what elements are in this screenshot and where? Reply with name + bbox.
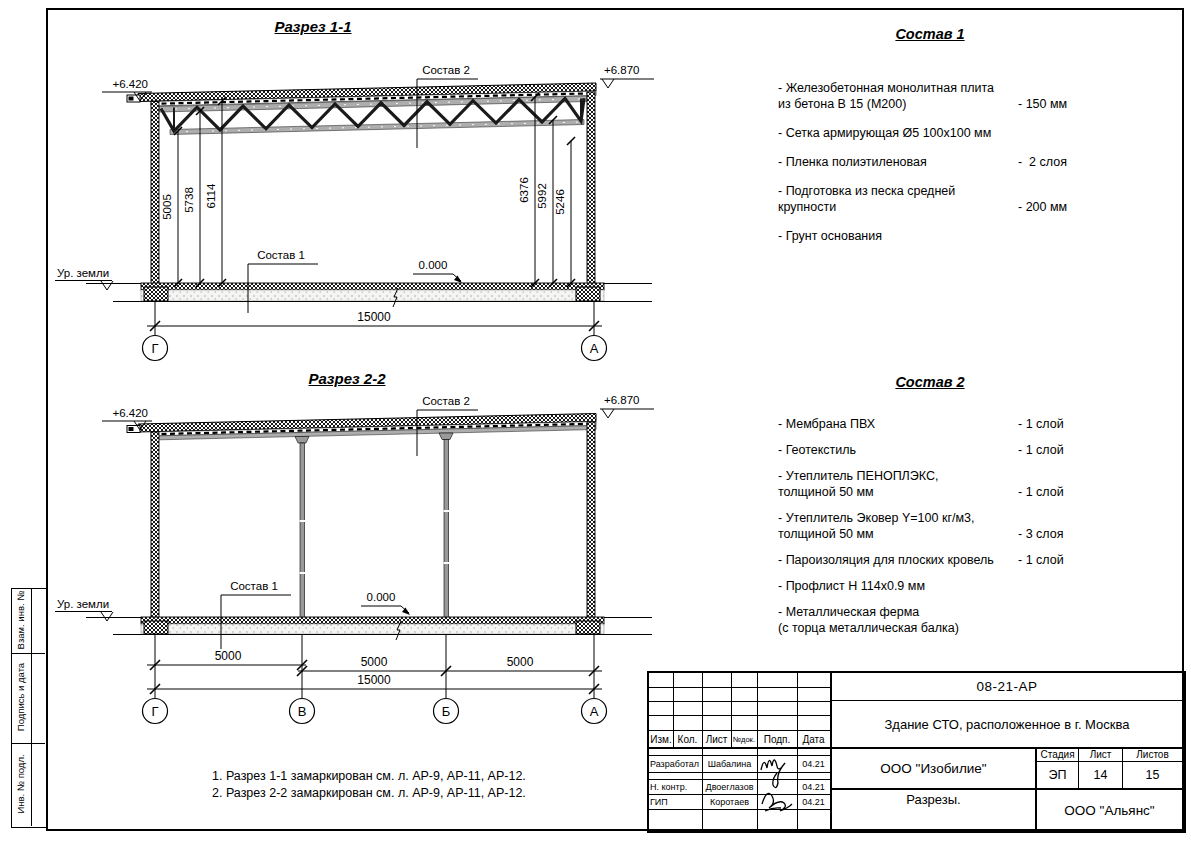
row-role: Н. контр. [650, 779, 702, 794]
project-title: Здание СТО, расположенное в г. Москва [832, 702, 1182, 746]
axis-a: А [590, 341, 599, 356]
strip-label-inv: Инв. № подл. [13, 739, 27, 829]
stage-value: ЭП [1037, 762, 1078, 787]
axis-v: В [298, 704, 307, 719]
foundation-right [576, 287, 600, 301]
column-right [587, 92, 595, 287]
drawing-sheet: Взам. инв. № Подпись и дата Инв. № подл.… [0, 0, 1191, 842]
row-role: ГИП [650, 794, 702, 809]
notes: 1. Разрез 1-1 замаркирован см. л. АР-9, … [212, 768, 526, 801]
row-name: Двоеглазов [702, 779, 757, 794]
col-izm: Изм. [649, 731, 673, 747]
col-podp: Подп. [757, 731, 797, 747]
sostav2-callout: Состав 2 [422, 64, 470, 76]
elevation-6870: +6.870 [604, 64, 640, 76]
floor-slab [86, 617, 652, 640]
axis-markers [143, 336, 607, 361]
column-left [151, 102, 159, 288]
col-ndok: №док. [731, 731, 757, 747]
list-item: - Мембрана ПВХ - 1 слой [778, 416, 1178, 432]
zero-arrowhead [454, 276, 462, 284]
list-item: - Сетка армирующая Ø5 100х100 мм [778, 125, 1178, 141]
elevation-marks [55, 79, 654, 290]
dim-5738: 5738 [183, 187, 195, 213]
list-item: - Грунт основания [778, 228, 1178, 244]
leader-lines [248, 79, 478, 313]
leader-lines [221, 410, 478, 649]
note-line: 1. Разрез 1-1 замаркирован см. л. АР-9, … [212, 768, 526, 785]
row-date: 04.21 [797, 779, 830, 794]
sostav1-heading: Состав 1 [865, 26, 995, 42]
axis-g: Г [151, 704, 158, 719]
column-axis-b [439, 433, 453, 618]
list-item: - Металлическая ферма (с торца металличе… [778, 604, 1178, 636]
sheet-name: Разрезы. [833, 791, 1034, 807]
list-item: - Утеплитель Эковер Y=100 кг/м3, толщино… [778, 510, 1178, 542]
dim-6376: 6376 [518, 177, 530, 203]
list-item: - Пароизоляция для плоских кровель - 1 с… [778, 552, 1178, 568]
list-item: - Утеплитель ПЕНОПЛЭКС, толщиной 50 мм -… [778, 468, 1178, 500]
doc-number: 08-21-АР [832, 674, 1182, 699]
dim-bay1: 5000 [215, 649, 242, 663]
note-line: 2. Разрез 2-2 замаркирован см. л. АР-9, … [212, 785, 526, 802]
row-role: Разработал [650, 755, 702, 772]
sheets-value: 15 [1123, 762, 1182, 787]
list-item: - Геотекстиль - 1 слой [778, 442, 1178, 458]
axis-g: Г [151, 341, 158, 356]
col-data: Дата [797, 731, 830, 747]
dim-5246: 5246 [554, 189, 566, 215]
elevation-marks [55, 409, 654, 621]
foundation-left [144, 621, 168, 634]
stage-label: Стадия [1037, 748, 1078, 761]
signature-strokes [757, 748, 797, 814]
zero-level-label: 0.000 [419, 259, 448, 271]
roof-slab [127, 414, 596, 441]
sheets-label: Листов [1123, 748, 1182, 761]
axis-markers [143, 699, 607, 724]
ground-level-label: Ур. земли [57, 267, 109, 279]
axis-b: Б [442, 704, 451, 719]
row-date: 04.21 [797, 755, 830, 772]
title-block: Изм. Кол. Лист №док. Подп. Дата Разработ… [647, 671, 1186, 833]
axis-a: А [590, 704, 599, 719]
foundation-right [576, 621, 600, 634]
dim-bay2: 5000 [361, 655, 388, 669]
sostav2-callout: Состав 2 [422, 395, 470, 407]
column-right [587, 422, 595, 618]
elevation-6420: +6.420 [113, 407, 149, 419]
sheet-value: 14 [1079, 762, 1122, 787]
sheet-label: Лист [1079, 748, 1122, 761]
list-item: - Пленка полиэтиленовая - 2 слоя [778, 154, 1178, 170]
sostav1-callout: Состав 1 [257, 249, 305, 261]
col-list: Лист [702, 731, 731, 747]
contractor-org: ООО "Альянс" [1037, 790, 1182, 830]
section2-drawing: 5000 5000 5000 15000 Г В Б А +6.420 +6.8… [50, 385, 670, 730]
section1-drawing: 5005 5738 6114 6376 5992 5246 15000 Г А … [50, 55, 670, 370]
elevation-6870: +6.870 [604, 394, 640, 406]
designer-org: ООО "Изобилие" [833, 749, 1034, 787]
elevation-6420: +6.420 [113, 78, 149, 90]
list-item: - Подготовка из песка средней крупности … [778, 183, 1178, 215]
list-item: - Железобетонная монолитная плита из бет… [778, 80, 1178, 112]
col-kol: Кол. [673, 731, 702, 747]
sostav1-list: - Железобетонная монолитная плита из бет… [778, 80, 1178, 257]
sostav2-list: - Мембрана ПВХ - 1 слой - Геотекстиль - … [778, 416, 1178, 646]
sostav1-callout: Состав 1 [230, 580, 278, 592]
section1-title: Разрез 1-1 [228, 18, 398, 35]
foundation-left [144, 287, 168, 301]
zero-level-label: 0.000 [367, 591, 396, 603]
row-date: 04.21 [797, 794, 830, 809]
sostav2-heading: Состав 2 [865, 374, 995, 390]
dim-15000: 15000 [357, 310, 391, 324]
dim-bay3: 5000 [507, 655, 534, 669]
dim-5992: 5992 [536, 183, 548, 209]
zero-arrowhead [402, 608, 410, 616]
column-axis-v [295, 437, 309, 618]
dim-6114: 6114 [205, 183, 217, 208]
strip-label-podpis: Подпись и дата [13, 652, 27, 742]
list-item: - Профлист Н 114х0.9 мм [778, 578, 1178, 594]
row-name: Шабалина [702, 755, 757, 772]
column-left [151, 432, 159, 618]
dim-15000: 15000 [357, 673, 391, 687]
ground-level-label: Ур. земли [57, 598, 109, 610]
row-name: Коротаев [702, 794, 757, 809]
dim-5005: 5005 [161, 194, 173, 220]
strip-divider [31, 589, 32, 826]
